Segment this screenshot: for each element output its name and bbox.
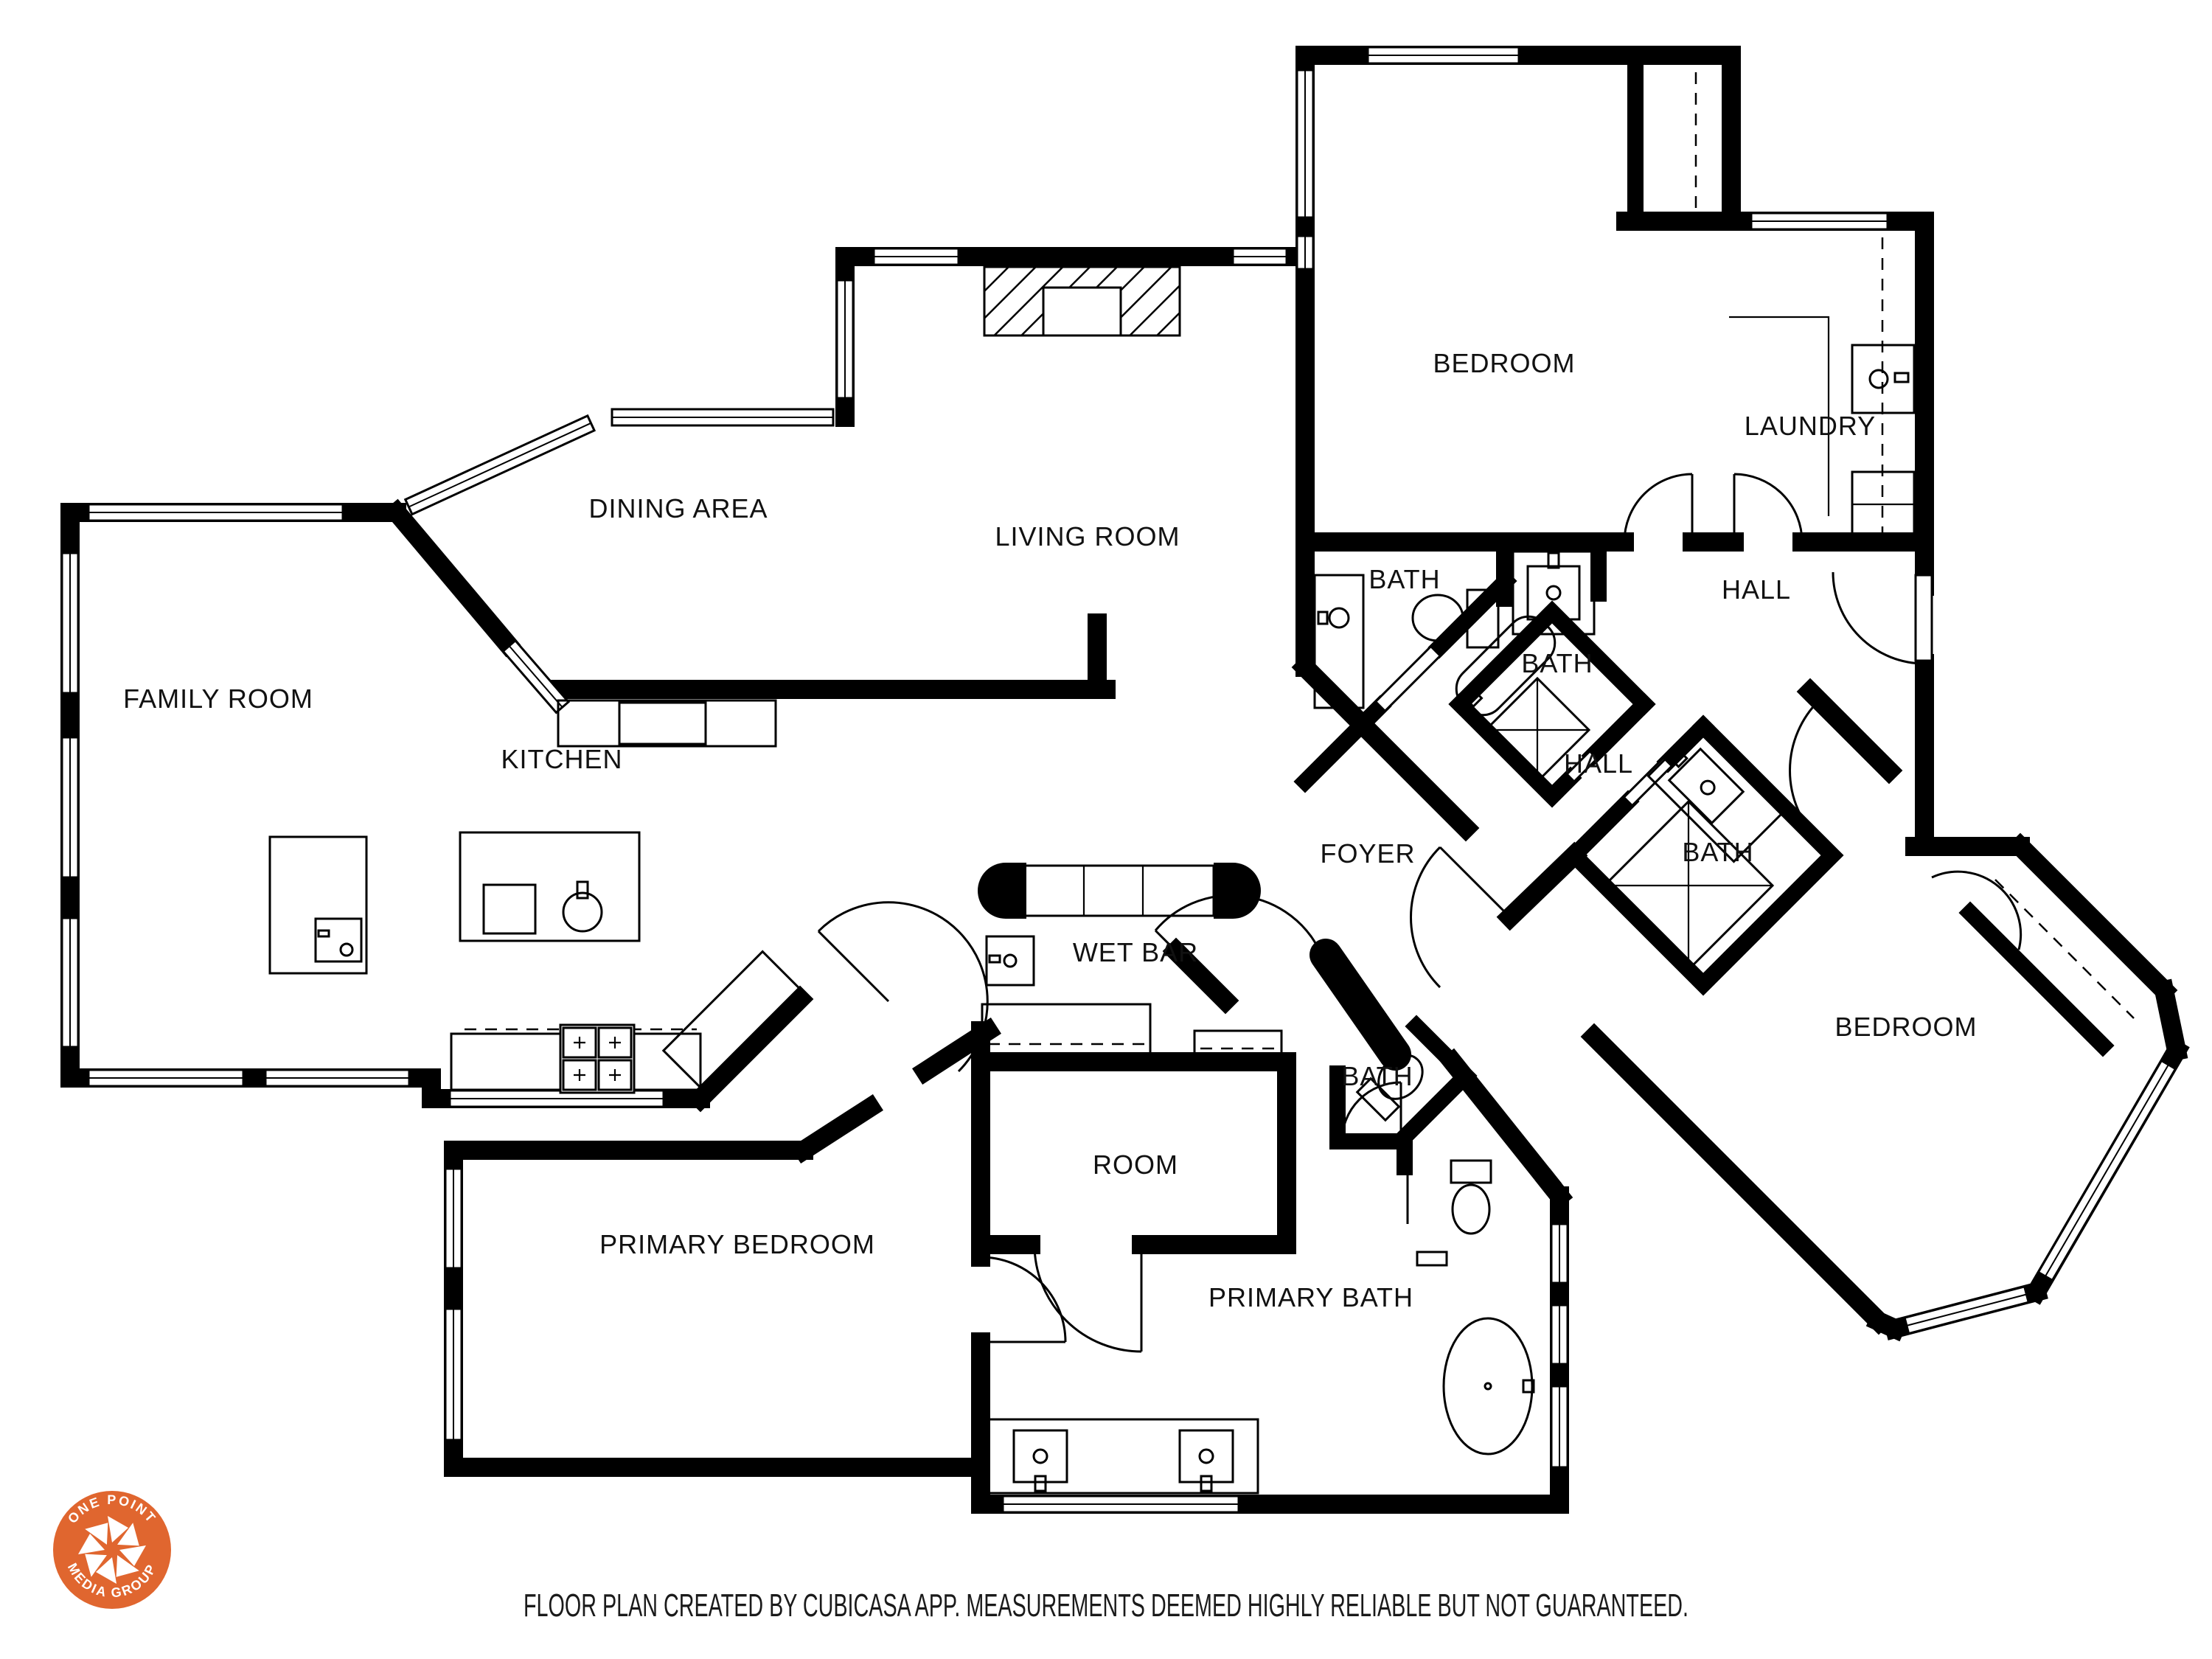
room-label-kitchen: KITCHEN xyxy=(501,744,622,774)
room-label-primary-bath: PRIMARY BATH xyxy=(1208,1282,1413,1312)
room-label-hall-upper: HALL xyxy=(1722,574,1791,605)
floorplan-svg: BEDROOM LAUNDRY DINING AREA LIVING ROOM … xyxy=(0,0,2212,1659)
room-label-bedroom-top: BEDROOM xyxy=(1433,348,1575,378)
room-label-hall-lower: HALL xyxy=(1564,748,1633,779)
primary-bath-fixtures xyxy=(987,1161,1534,1493)
room-label-room: ROOM xyxy=(1093,1150,1178,1180)
floorplan-page: BEDROOM LAUNDRY DINING AREA LIVING ROOM … xyxy=(0,0,2212,1659)
footer-disclaimer: FLOOR PLAN CREATED BY CUBICASA APP. MEAS… xyxy=(524,1587,1688,1624)
fixtures xyxy=(270,72,2134,1493)
room-label-wet-bar: WET BAR xyxy=(1073,937,1198,967)
room-label-family: FAMILY ROOM xyxy=(123,684,313,714)
room-label-laundry: LAUNDRY xyxy=(1745,411,1876,441)
room-label-dining: DINING AREA xyxy=(588,493,768,524)
room-label-bath-upper: BATH xyxy=(1368,564,1440,594)
room-labels: BEDROOM LAUNDRY DINING AREA LIVING ROOM … xyxy=(123,348,1977,1312)
room-label-primary-bedroom: PRIMARY BEDROOM xyxy=(599,1229,875,1259)
room-label-living: LIVING ROOM xyxy=(995,521,1180,552)
interior-walls xyxy=(558,65,2103,1245)
room-label-bath-right: BATH xyxy=(1682,837,1753,867)
room-label-bedroom-right: BEDROOM xyxy=(1834,1012,1977,1042)
room-label-foyer: FOYER xyxy=(1320,838,1415,869)
fireplace-fixture xyxy=(984,267,1180,335)
room-label-bath-powder: BATH xyxy=(1341,1061,1413,1091)
cooktop-fixture xyxy=(560,1025,634,1093)
logo: ONE POINT MEDIA GROUP xyxy=(53,1491,171,1609)
room-label-bath-middle: BATH xyxy=(1521,648,1593,678)
